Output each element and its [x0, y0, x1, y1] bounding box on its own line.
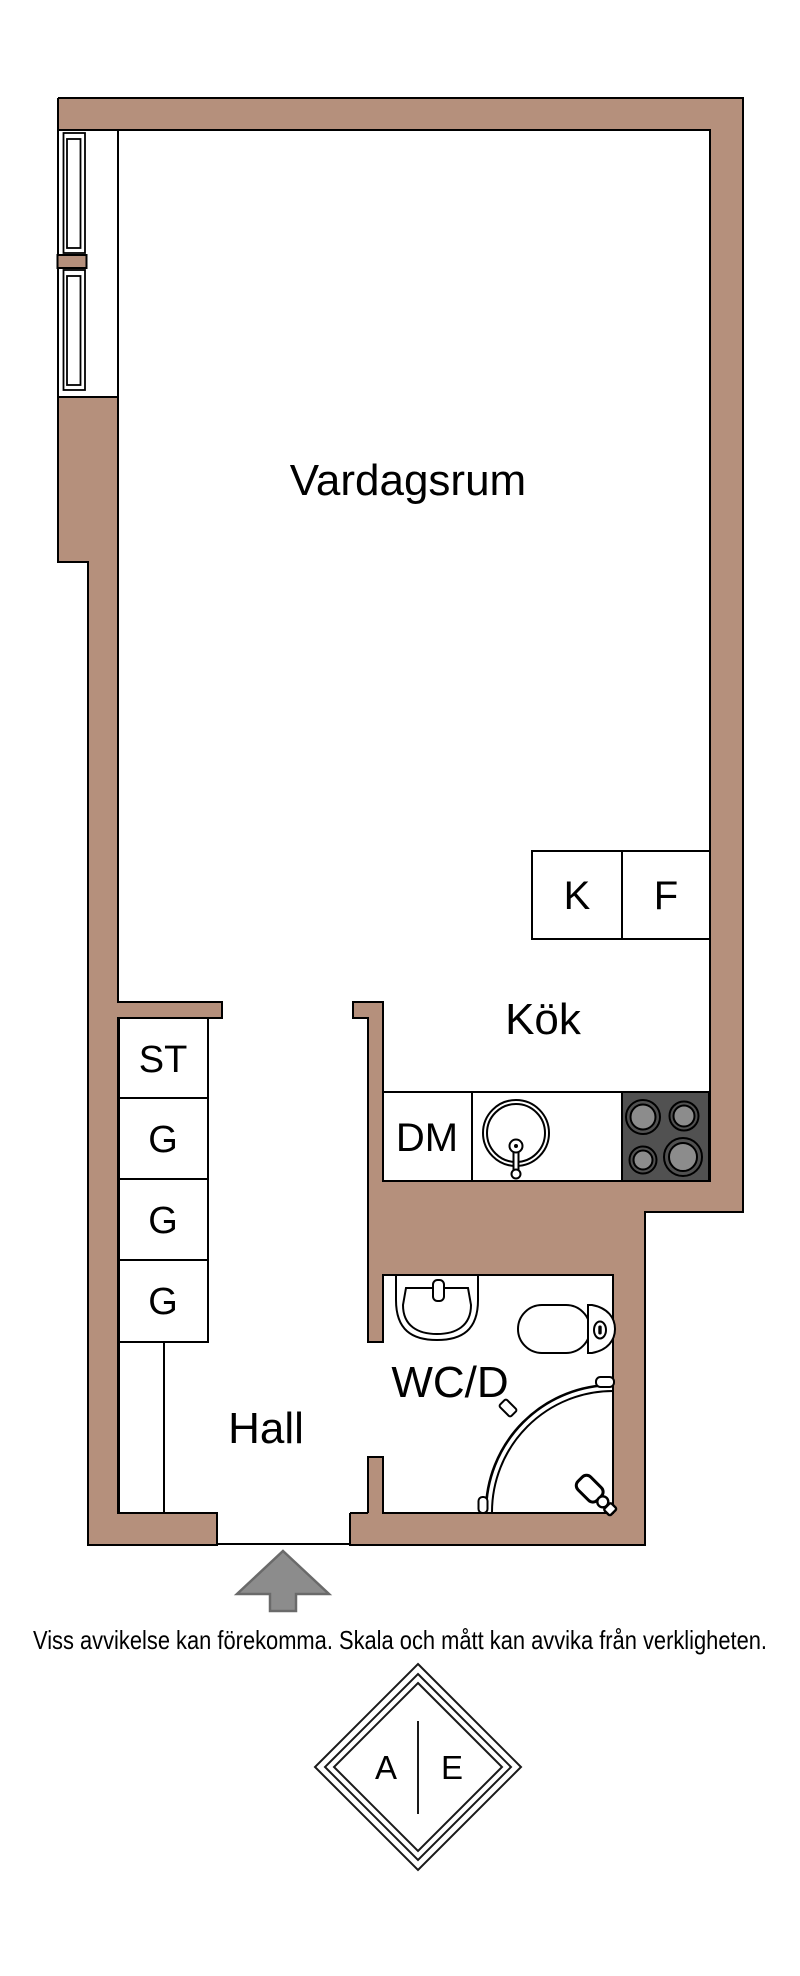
shower-pivot-post [479, 1497, 488, 1513]
stove-icon [622, 1092, 709, 1181]
wall-partition [368, 1002, 383, 1342]
window-sash-lower-inner [67, 276, 81, 385]
disclaimer-text: Viss avvikelse kan förekomma. Skala och … [33, 1625, 767, 1655]
entrance-arrow [237, 1551, 329, 1611]
basin-faucet [433, 1280, 444, 1301]
toilet-bowl [518, 1305, 590, 1353]
window-divider [58, 255, 87, 268]
burner-bl-inner [634, 1151, 653, 1170]
entrance-arrow-icon [237, 1551, 329, 1611]
faucet-dot [514, 1144, 518, 1148]
wall-top [58, 98, 743, 130]
wall-bottom-right [350, 1513, 645, 1544]
floorplan-svg: Vardagsrum Kök Hall WC/D K F DM ST G G G… [0, 0, 800, 1971]
wall-kitchen-band-a [383, 1181, 710, 1212]
stove-box [622, 1092, 709, 1181]
freezer-label: F [654, 874, 678, 918]
window-sash-upper-inner [67, 139, 81, 248]
fridge-label: K [564, 874, 591, 918]
toilet-icon [518, 1305, 615, 1353]
window-icon [58, 133, 87, 390]
closet-st-label: ST [139, 1039, 188, 1081]
logo-letter-left: A [375, 1749, 397, 1786]
closet-lower-cabinet [119, 1342, 164, 1513]
wall-kitchen-band-b [383, 1212, 645, 1275]
wall-right [710, 98, 743, 1212]
toilet-button-slot [598, 1326, 601, 1335]
wall-bottom-left [88, 1513, 217, 1544]
wall-closet-stub [117, 1002, 222, 1018]
wall-wc-right [613, 1275, 645, 1514]
closet-g2-label: G [148, 1200, 178, 1242]
floorplan-page: Vardagsrum Kök Hall WC/D K F DM ST G G G… [0, 0, 800, 1971]
wall-wc-left-lower [368, 1457, 383, 1514]
diamond-logo [315, 1664, 521, 1870]
room-label-bathroom: WC/D [391, 1358, 508, 1407]
room-label-kitchen: Kök [505, 995, 582, 1044]
room-label-living: Vardagsrum [290, 456, 526, 505]
sink-counter-box [472, 1092, 622, 1181]
burner-tl-inner [631, 1105, 656, 1130]
burner-tr-inner [674, 1106, 695, 1127]
shower-door-handle [596, 1377, 614, 1387]
faucet-head [512, 1170, 521, 1179]
closets [119, 1018, 208, 1513]
wall-left-upper [58, 397, 118, 562]
logo-letter-right: E [441, 1749, 463, 1786]
closet-g1-label: G [148, 1119, 178, 1161]
closet-g3-label: G [148, 1281, 178, 1323]
burner-br-inner [669, 1143, 697, 1171]
bathroom-sink-icon [396, 1275, 478, 1340]
wall-partition-lip [353, 1002, 368, 1018]
wall-left-lower [88, 562, 118, 1514]
dishwasher-label: DM [396, 1116, 458, 1160]
room-label-hall: Hall [228, 1404, 304, 1453]
